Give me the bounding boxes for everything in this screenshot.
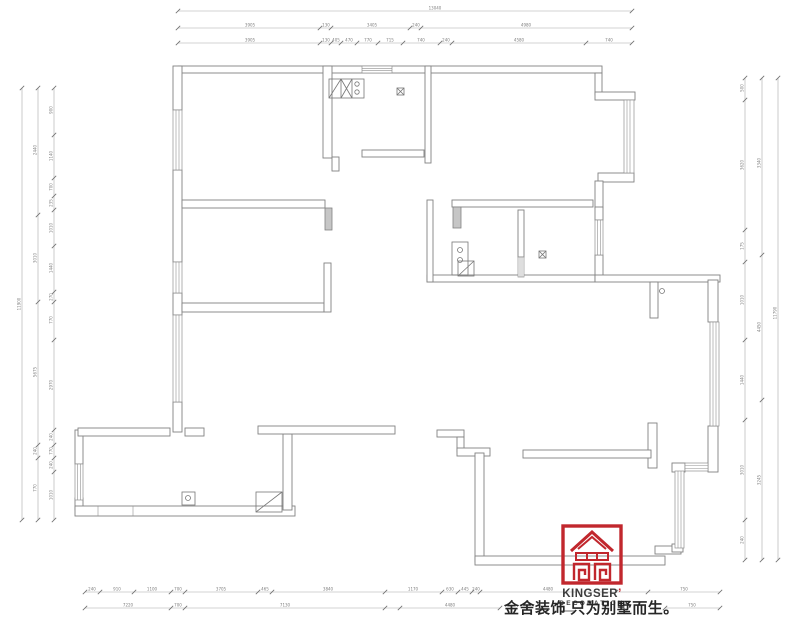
svg-text:770: 770 xyxy=(33,484,38,492)
svg-text:235: 235 xyxy=(49,199,54,207)
window-mid-right xyxy=(595,220,603,255)
svg-text:770: 770 xyxy=(364,38,372,43)
windows xyxy=(75,66,719,548)
svg-text:7220: 7220 xyxy=(123,603,134,608)
columns xyxy=(325,207,461,230)
svg-text:240: 240 xyxy=(49,433,54,441)
svg-text:700: 700 xyxy=(49,183,54,191)
svg-text:1010: 1010 xyxy=(49,222,54,233)
svg-text:175: 175 xyxy=(740,242,745,250)
svg-text:4450: 4450 xyxy=(757,321,762,332)
brand-slogan: 金舍装饰 只为别墅而生。 xyxy=(504,597,679,618)
window-left-1 xyxy=(173,110,182,170)
svg-text:4580: 4580 xyxy=(514,38,525,43)
svg-text:1010: 1010 xyxy=(49,489,54,500)
svg-text:3010: 3010 xyxy=(33,252,38,263)
fixtures xyxy=(182,79,665,512)
window-bay-top-right xyxy=(624,100,634,173)
window-living-right xyxy=(710,322,719,426)
svg-text:3340: 3340 xyxy=(757,157,762,168)
svg-text:3245: 3245 xyxy=(757,474,762,485)
window-bath-vent xyxy=(518,257,524,277)
svg-text:1170: 1170 xyxy=(408,587,419,592)
floor-drain xyxy=(182,492,195,505)
svg-text:4480: 4480 xyxy=(543,587,554,592)
svg-text:740: 740 xyxy=(417,38,425,43)
svg-text:500: 500 xyxy=(740,84,745,92)
svg-text:470: 470 xyxy=(345,38,353,43)
shaft-symbol-1 xyxy=(397,88,404,95)
svg-text:240: 240 xyxy=(472,587,480,592)
svg-text:770: 770 xyxy=(49,316,54,324)
svg-text:1140: 1140 xyxy=(49,150,54,161)
window-left-2 xyxy=(173,262,182,293)
svg-text:750: 750 xyxy=(680,587,688,592)
svg-text:3905: 3905 xyxy=(245,38,256,43)
svg-text:900: 900 xyxy=(49,106,54,114)
svg-text:465: 465 xyxy=(261,587,269,592)
svg-text:240: 240 xyxy=(442,38,450,43)
window-bay-bottom-right xyxy=(675,471,684,548)
svg-text:240: 240 xyxy=(88,587,96,592)
svg-text:3405: 3405 xyxy=(367,23,378,28)
svg-text:3620: 3620 xyxy=(740,159,745,170)
svg-text:750: 750 xyxy=(688,603,696,608)
door-knob-mark xyxy=(660,289,665,294)
svg-text:130: 130 xyxy=(322,23,330,28)
svg-text:770: 770 xyxy=(49,447,54,455)
floor-plan-drawing: 1304039051303405240498039051304054707707… xyxy=(0,0,800,640)
svg-text:7130: 7130 xyxy=(280,603,291,608)
svg-text:1440: 1440 xyxy=(49,262,54,273)
washbasin xyxy=(452,242,468,275)
kitchen-counter xyxy=(329,79,364,98)
svg-text:11790: 11790 xyxy=(773,306,778,319)
svg-text:240: 240 xyxy=(49,461,54,469)
walls xyxy=(75,66,720,565)
svg-text:270: 270 xyxy=(49,293,54,301)
svg-text:3840: 3840 xyxy=(323,587,334,592)
svg-text:1440: 1440 xyxy=(740,374,745,385)
svg-text:240: 240 xyxy=(33,447,38,455)
svg-text:740: 740 xyxy=(605,38,613,43)
svg-text:240: 240 xyxy=(740,536,745,544)
svg-text:1010: 1010 xyxy=(740,294,745,305)
svg-text:13040: 13040 xyxy=(429,6,442,11)
svg-text:240: 240 xyxy=(412,23,420,28)
window-bottom-left xyxy=(75,464,83,500)
svg-text:11900: 11900 xyxy=(17,297,22,310)
svg-text:405: 405 xyxy=(332,38,340,43)
svg-text:4980: 4980 xyxy=(521,23,532,28)
dimension-annotations: 1304039051303405240498039051304054707707… xyxy=(17,6,781,611)
svg-text:1100: 1100 xyxy=(147,587,158,592)
door-swing-bath xyxy=(458,261,474,276)
kingser-logo-icon xyxy=(560,524,624,586)
svg-text:910: 910 xyxy=(113,587,121,592)
window-top xyxy=(362,66,392,73)
svg-text:4480: 4480 xyxy=(445,603,456,608)
svg-text:700: 700 xyxy=(174,587,182,592)
svg-text:130: 130 xyxy=(322,38,330,43)
svg-text:700: 700 xyxy=(174,603,182,608)
svg-text:3705: 3705 xyxy=(216,587,227,592)
window-bottom-right-h xyxy=(685,463,708,471)
svg-text:445: 445 xyxy=(461,587,469,592)
shaft-symbol-2 xyxy=(539,251,546,258)
svg-text:715: 715 xyxy=(386,38,394,43)
svg-text:5675: 5675 xyxy=(33,366,38,377)
svg-text:3905: 3905 xyxy=(245,23,256,28)
window-left-3 xyxy=(173,315,182,402)
svg-text:3010: 3010 xyxy=(740,464,745,475)
svg-text:630: 630 xyxy=(446,587,454,592)
svg-text:2440: 2440 xyxy=(33,144,38,155)
svg-text:2970: 2970 xyxy=(49,379,54,390)
